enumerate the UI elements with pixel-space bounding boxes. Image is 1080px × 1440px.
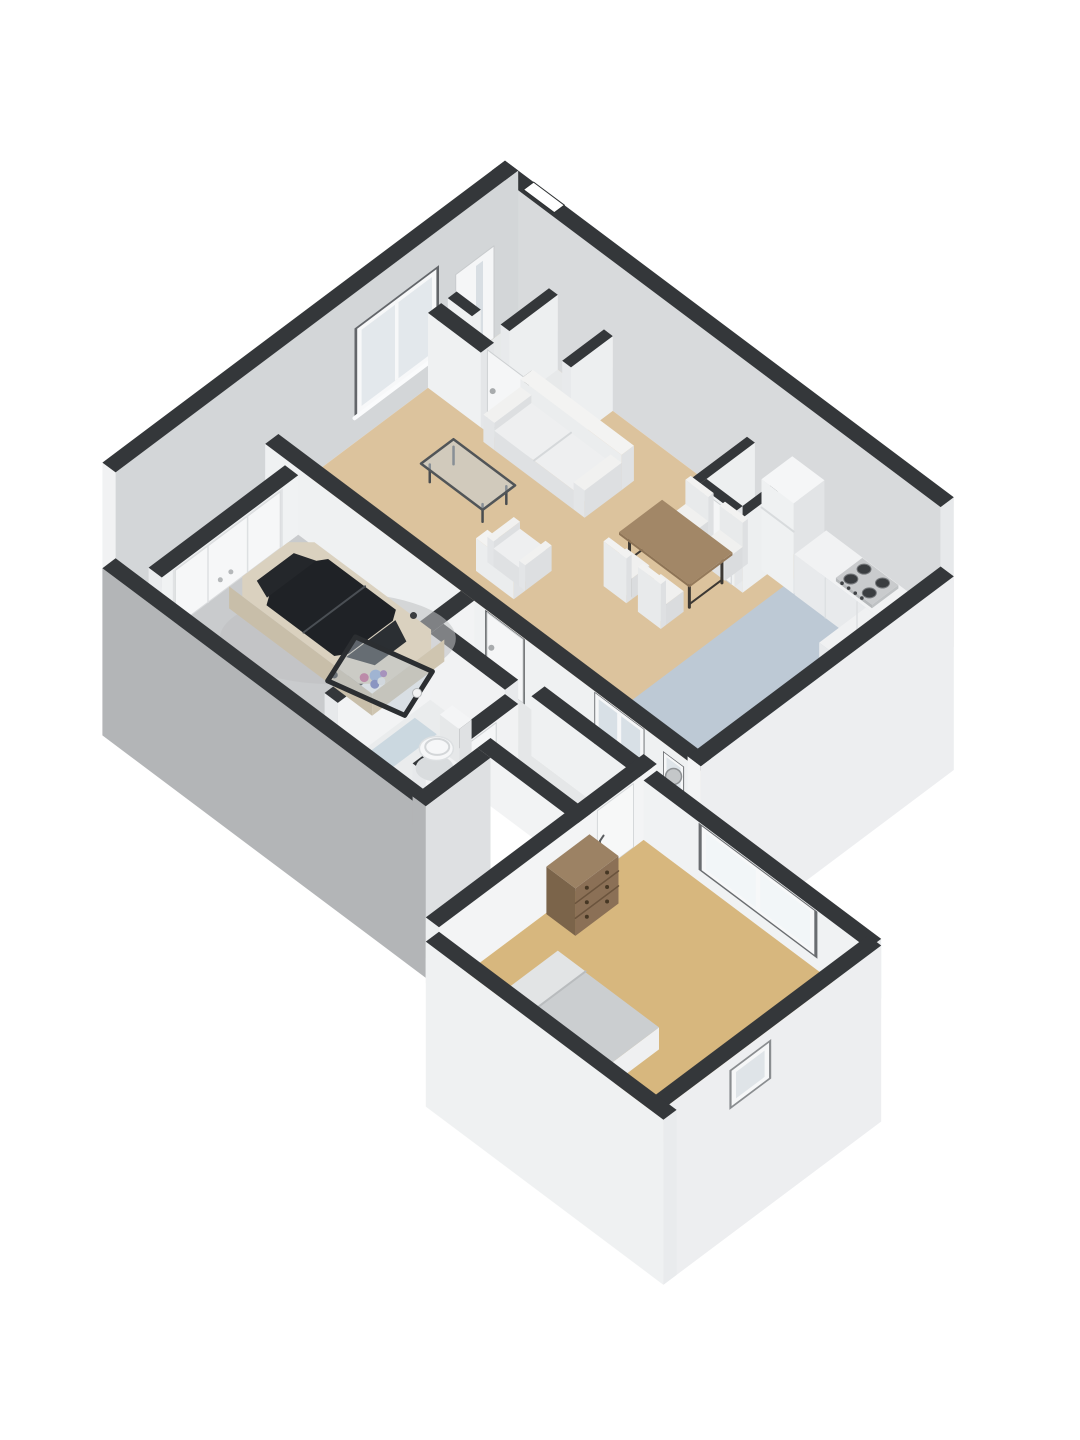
glass-panel-knob: [413, 689, 422, 698]
garage-door-handle: [218, 577, 223, 582]
dresser-knob: [585, 900, 589, 904]
garage-door-handle: [228, 569, 233, 574]
stove-knob: [853, 591, 857, 595]
bath-hall-door-handle: [488, 645, 494, 651]
armchair-arm-east-face-sw: [519, 561, 525, 591]
dresser-knob: [605, 871, 609, 875]
wall-bath-east-face-sw: [413, 796, 426, 978]
dining-chair-back-face-se: [661, 580, 666, 629]
living-window-mullion: [395, 302, 399, 381]
dresser-knob: [585, 886, 589, 890]
dining-chair-back-face-se: [708, 493, 713, 542]
bedroom-window-mullion: [756, 870, 760, 910]
dresser-knob: [585, 915, 589, 919]
stove-burner: [857, 564, 871, 574]
floorplan-render: [0, 0, 1080, 1440]
car-mirror: [410, 612, 417, 619]
dresser-knob: [605, 885, 609, 889]
stove-knob: [840, 581, 844, 585]
stove-burner: [876, 578, 890, 588]
wall-bedroom-sw-face-se: [663, 1110, 676, 1285]
stove-knob: [847, 586, 851, 590]
dining-chair-back-face-se: [743, 519, 748, 568]
armchair-arm-west-face-sw: [487, 537, 493, 567]
stove-burner: [862, 588, 876, 598]
floorplan-page: [0, 0, 1080, 1440]
hall-door-handle: [490, 388, 496, 394]
stove-knob: [860, 596, 864, 600]
stove-burner: [844, 574, 858, 584]
dining-chair-back-face-se: [626, 554, 631, 603]
dresser-knob: [605, 900, 609, 904]
